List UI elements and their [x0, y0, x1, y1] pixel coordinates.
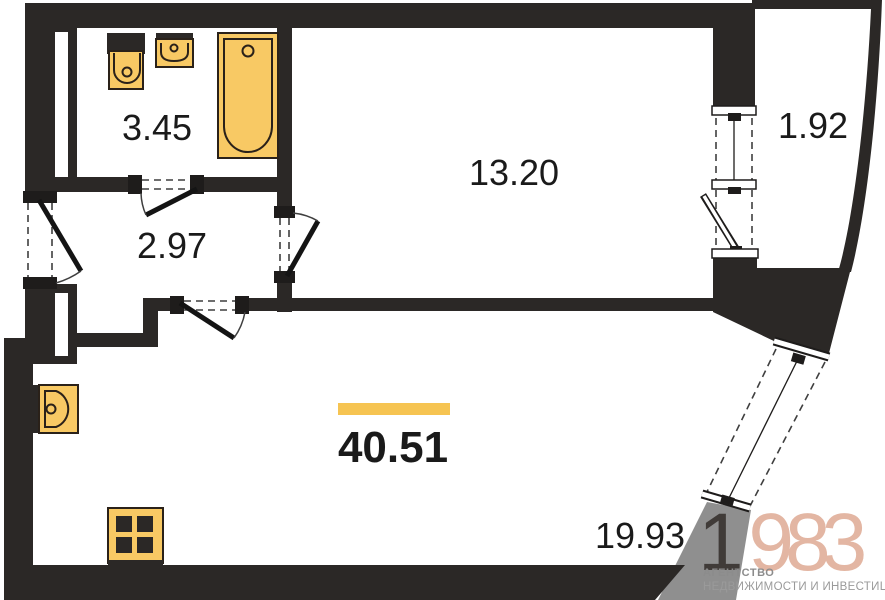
area-label-living-kitchen: 19.93: [595, 515, 685, 556]
kitchen-sink-icon: [33, 385, 78, 433]
floor-plan: 3.45 2.97 13.20 1.92 19.93 40.51 1 983 А…: [0, 0, 885, 600]
agency-watermark: 1 983 АГЕНТСТВО НЕДВИЖИМОСТИ И ИНВЕСТИЦИ…: [698, 497, 885, 593]
floor-plan-page: 3.45 2.97 13.20 1.92 19.93 40.51 1 983 А…: [0, 0, 885, 600]
total-area-accent-bar: [338, 403, 450, 415]
bath-sink-icon: [156, 33, 193, 67]
area-label-balcony: 1.92: [778, 105, 848, 146]
agency-name-line1: АГЕНТСТВО: [703, 567, 774, 579]
area-label-bedroom: 13.20: [469, 152, 559, 193]
total-area-badge: 40.51: [338, 403, 450, 472]
area-label-hallway: 2.97: [137, 225, 207, 266]
bathtub-icon: [218, 33, 278, 158]
stove-icon: [108, 508, 163, 566]
agency-name-line2: НЕДВИЖИМОСТИ И ИНВЕСТИЦИЙ: [703, 580, 885, 593]
toilet-icon: [107, 33, 145, 89]
total-area-label: 40.51: [338, 423, 448, 472]
area-label-bathroom: 3.45: [122, 107, 192, 148]
